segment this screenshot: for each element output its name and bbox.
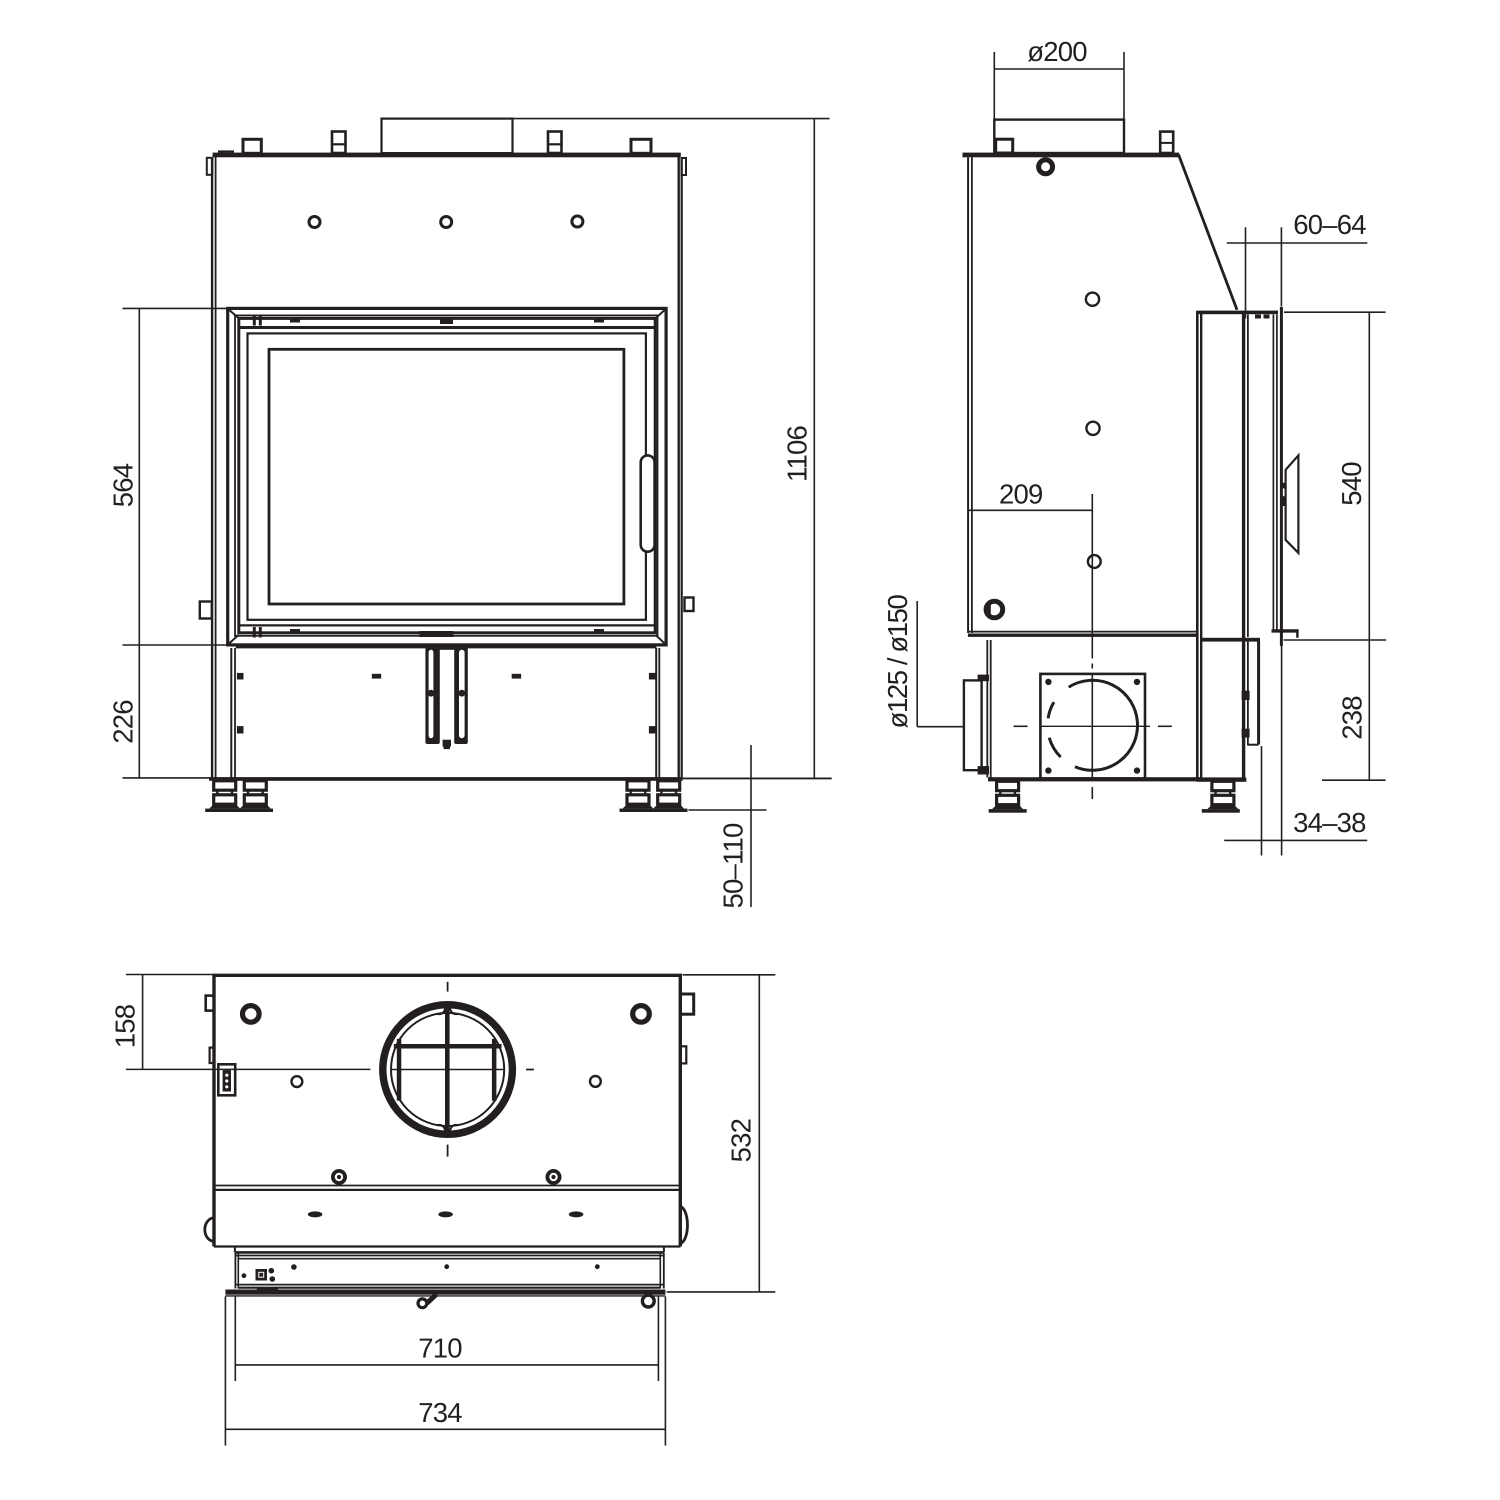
svg-text:734: 734 xyxy=(418,1397,462,1428)
svg-text:540: 540 xyxy=(1336,462,1367,506)
svg-text:710: 710 xyxy=(418,1333,462,1364)
svg-text:226: 226 xyxy=(108,700,139,744)
svg-text:532: 532 xyxy=(726,1119,757,1162)
svg-text:ø125 / ø150: ø125 / ø150 xyxy=(882,594,913,728)
svg-text:60–64: 60–64 xyxy=(1293,209,1366,240)
svg-text:50–110: 50–110 xyxy=(718,823,749,908)
svg-text:158: 158 xyxy=(109,1004,140,1048)
svg-text:564: 564 xyxy=(108,463,139,507)
svg-text:ø200: ø200 xyxy=(1027,36,1087,67)
svg-text:209: 209 xyxy=(999,479,1042,510)
svg-text:1106: 1106 xyxy=(782,426,813,482)
svg-text:238: 238 xyxy=(1337,696,1368,740)
svg-text:34–38: 34–38 xyxy=(1293,807,1366,838)
